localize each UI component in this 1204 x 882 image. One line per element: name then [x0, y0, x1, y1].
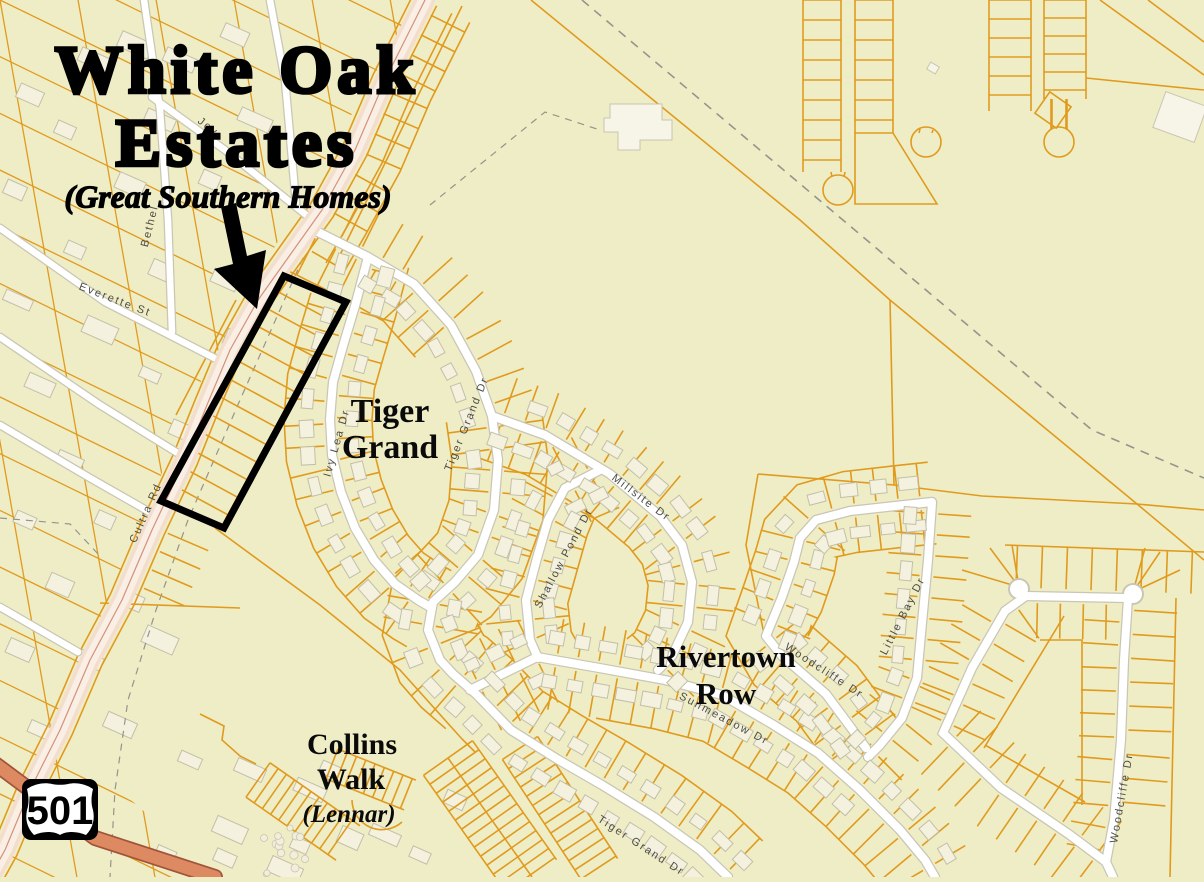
svg-text:501: 501 — [27, 789, 94, 833]
